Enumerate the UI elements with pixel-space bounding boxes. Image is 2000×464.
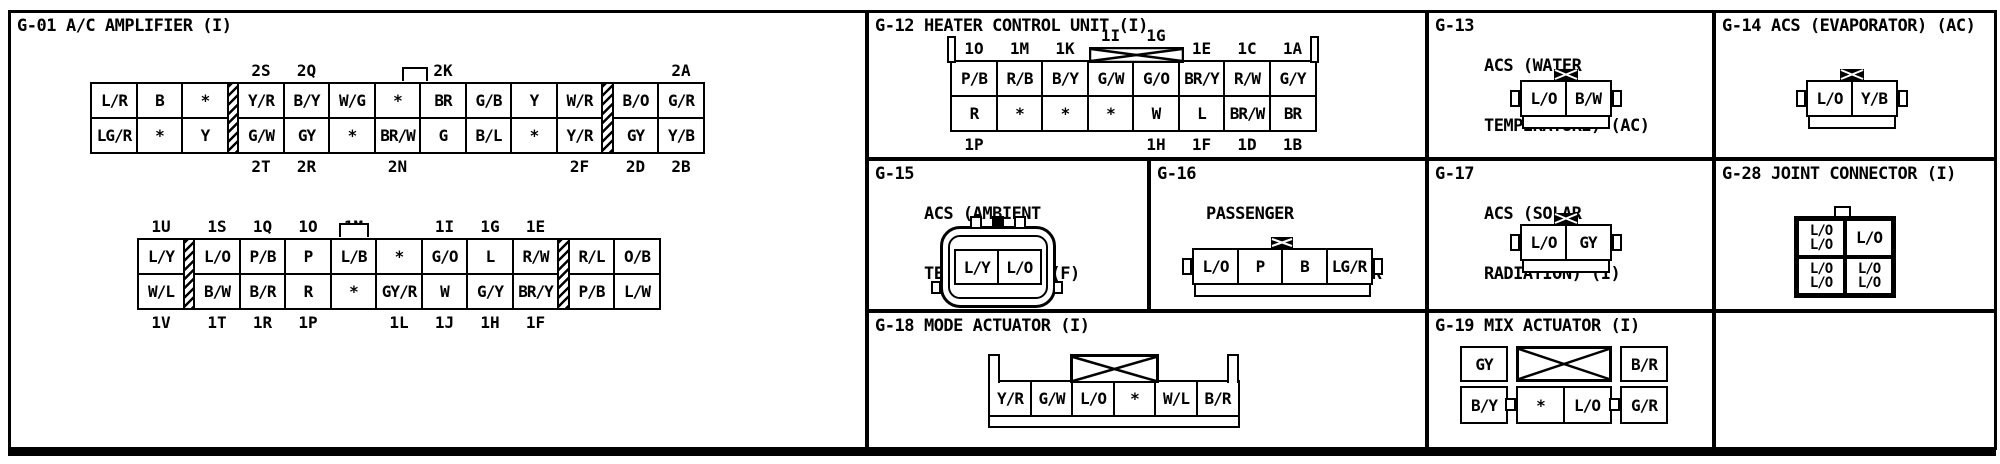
pin-label-bottom [996, 132, 1044, 159]
pin-pair: * L/O [1516, 386, 1612, 424]
wire-color-cell: O/B [613, 238, 661, 275]
pin-label-top [613, 212, 661, 238]
side-tab-icon [1612, 90, 1622, 107]
pin-label-top: 1M [996, 34, 1044, 60]
wire-color-cell: W [1132, 95, 1180, 132]
connector-code: G-28 [1722, 164, 1761, 184]
wire-color-cell: BR [1269, 95, 1317, 132]
connector-name: MODE ACTUATOR (I) [924, 316, 1090, 336]
pin-label-bottom [136, 154, 184, 181]
wire-color-cell: G/Y [1269, 60, 1317, 97]
connector-name: A/C AMPLIFIER (I) [66, 16, 232, 36]
pin-column: B/O GY 2D [612, 56, 660, 181]
wire-color-cell: L/O [1071, 380, 1115, 417]
wire-color-cell: G/R [1620, 386, 1668, 424]
pin-label-bottom: 2N [374, 154, 422, 181]
connector-code: G-15 [875, 164, 914, 324]
side-tab-icon [1182, 258, 1192, 275]
pin-label-top: 1S [193, 212, 241, 238]
pin-column: 2A G/R Y/B 2B [657, 56, 705, 181]
wire-color-cell: BR/Y [512, 273, 560, 310]
wire-color-cell: B/Y [1460, 386, 1508, 424]
pin-label-top [328, 56, 376, 82]
side-tab-icon [1898, 90, 1908, 107]
pin-column: Y * [510, 56, 558, 181]
pin-label-bottom [1041, 132, 1089, 159]
pin-column: 1G L G/Y 1H [466, 212, 514, 337]
pin-column: L/R LG/R [90, 56, 138, 181]
wire-color-cell: L/Y [137, 238, 185, 275]
pin-label-bottom: 1F [1178, 132, 1226, 159]
wire-color: L/O [1810, 262, 1832, 276]
panel-title: G-18 MODE ACTUATOR (I) [869, 313, 1425, 336]
wire-color-cell: G/O [421, 238, 469, 275]
crossed-tab-icon [1089, 47, 1184, 63]
pin-label-bottom: 1R [239, 310, 287, 337]
wire-color-cell: P/B [239, 238, 287, 275]
wire-color-cell: L/O [1520, 80, 1567, 117]
wire-color-cell: L/B [330, 238, 378, 275]
wire-color-cell: P/B [950, 60, 998, 97]
wire-color-cell: * [328, 117, 376, 154]
wire-color-cell: L/O [1192, 248, 1239, 285]
g12-connector: 1O P/B R 1P 1M R/B * 1K B/Y * 1I G/W * 1… [950, 34, 1317, 159]
wire-color-cell: GY/R [375, 273, 423, 310]
wire-color-cell: L [466, 238, 514, 275]
g01-connector-2: L/R LG/R B * * Y 2S Y/R G/W 2T 2Q B/Y GY… [90, 56, 705, 181]
wire-color-cell: B/L [465, 117, 513, 154]
g15-connector: L/Y L/O [940, 216, 1056, 308]
wire-color-cell: B/Y [1041, 60, 1089, 97]
wire-color-cell: * [996, 95, 1044, 132]
wire-color-cell: R/W [1223, 60, 1271, 97]
wire-color-cell: GY [1460, 346, 1508, 382]
wire-color: L/O [1856, 231, 1882, 245]
wire-color-cell: B/R [239, 273, 287, 310]
wire-color-cell: Y [510, 82, 558, 119]
wire-color-cell: B/R [1196, 380, 1240, 417]
pin-label-bottom [510, 154, 558, 181]
bracket-tab-icon [1227, 354, 1239, 383]
pin-label-top: 1E [1178, 34, 1226, 60]
top-tab-icon [992, 216, 1004, 229]
g28-connector: L/O L/O L/O L/O L/O L/O L/O [1794, 206, 1896, 298]
g14-connector: L/O Y/B [1796, 68, 1908, 129]
pin-label-bottom [568, 310, 616, 337]
wire-color-cell: BR [419, 82, 467, 119]
wire-color-cell: P/B [568, 273, 616, 310]
pin-label-bottom: 2D [612, 154, 660, 181]
wire-color-cell: Y/B [1851, 80, 1898, 117]
pin-column: R/L P/B [568, 212, 616, 337]
pin-label-top [568, 212, 616, 238]
pin-label-bottom [465, 154, 513, 181]
bracket-tab-icon [1310, 36, 1319, 63]
pin-column: 1E R/W BR/Y 1F [512, 212, 560, 337]
pin-column: 1E BR/Y L 1F [1178, 34, 1226, 159]
side-tab-icon [1796, 90, 1806, 107]
wire-color-cell: R/W [512, 238, 560, 275]
wire-color-cell: BR/W [1223, 95, 1271, 132]
wire-color-cell: G/W [237, 117, 285, 154]
pin-label-top: 1O [284, 212, 332, 238]
wire-color-cell: GY [612, 117, 660, 154]
pin-label-bottom: 2F [556, 154, 604, 181]
wire-color-cell: G/O [1132, 60, 1180, 97]
pin-label-top: 1U [137, 212, 185, 238]
side-tab-icon [1053, 281, 1063, 294]
panel-title: G-28 JOINT CONNECTOR (I) [1716, 161, 1994, 184]
pin-label-top: 1I [1087, 21, 1135, 47]
g13-connector: L/O B/W [1510, 68, 1622, 129]
connector-code: G-19 [1435, 316, 1474, 336]
bottom-border [8, 449, 1996, 456]
wire-color-cell: P [284, 238, 332, 275]
pin-column: 1S L/O B/W 1T [193, 212, 241, 337]
wire-color-cell: R/B [996, 60, 1044, 97]
wire-color: L/O [1858, 262, 1880, 276]
panel-title: G-01 A/C AMPLIFIER (I) [11, 13, 865, 36]
wire-color-cell: Y/B [657, 117, 705, 154]
top-tab-icon [1014, 216, 1026, 229]
wire-color-cell: GY [283, 117, 331, 154]
wire-color-cell: L/O [1563, 386, 1612, 424]
wire-color-cell: * [181, 82, 229, 119]
pin-label-bottom: 1H [466, 310, 514, 337]
pin-label-bottom: 1L [375, 310, 423, 337]
connector-name: PASSENGER [1206, 204, 1381, 224]
pin-label-top: 1K [1041, 34, 1089, 60]
pin-label-top [510, 56, 558, 82]
pin-label-bottom: 1F [512, 310, 560, 337]
g16-connector: L/O P B LG/R [1182, 236, 1383, 297]
pin-label-bottom [181, 154, 229, 181]
top-tab-icon [1834, 206, 1851, 218]
wire-color-cell: LG/R [90, 117, 138, 154]
pin-label-bottom [1087, 132, 1135, 159]
pin-label-bottom [90, 154, 138, 181]
wire-color-cell: P [1237, 248, 1284, 285]
side-tab-icon [1373, 258, 1383, 275]
wire-color-cell: B/W [193, 273, 241, 310]
pin-label-bottom: 1V [137, 310, 185, 337]
wire-color-cell: B [136, 82, 184, 119]
wire-color-cell: * [1041, 95, 1089, 132]
wire-color-cell: B/W [1565, 80, 1612, 117]
wire-color-cell: R [950, 95, 998, 132]
pin-label-bottom: 1P [284, 310, 332, 337]
pin-label-top [465, 56, 513, 82]
wire-color-cell: B/O [612, 82, 660, 119]
wire-color-cell: L/O L/O [1797, 219, 1845, 257]
pin-column: * Y [181, 56, 229, 181]
pin-column: * GY/R 1L [375, 212, 423, 337]
pin-column: 1O P/B R 1P [950, 34, 998, 159]
pin-label-top [556, 56, 604, 82]
wire-color: L/O [1810, 238, 1832, 252]
wire-color-cell: G/W [1030, 380, 1074, 417]
pin-column: 1K B/Y * [1041, 34, 1089, 159]
connector-name: JOINT CONNECTOR (I) [1771, 164, 1956, 184]
wire-color-cell: BR/Y [1178, 60, 1226, 97]
pin-label-top [181, 56, 229, 82]
panel-title: G-14 ACS (EVAPORATOR) (AC) [1716, 13, 1994, 36]
pin-label-top: 1E [512, 212, 560, 238]
wire-color-cell: L [1178, 95, 1226, 132]
pin-label-bottom [328, 154, 376, 181]
panel-title: G-19 MIX ACTUATOR (I) [1429, 313, 1712, 336]
wire-color-cell: * [1113, 380, 1157, 417]
g19-connector: GY B/R B/Y * L/O G/R [1460, 346, 1668, 424]
pin-label-bottom [613, 310, 661, 337]
wire-color-cell: BR/W [374, 117, 422, 154]
wire-color-cell: * [136, 117, 184, 154]
pin-column: 1Q P/B B/R 1R [239, 212, 287, 337]
wire-color-cell: L/O [1806, 80, 1853, 117]
pin-label-top: 2A [657, 56, 705, 82]
connector-name: ACS (EVAPORATOR) (AC) [1771, 16, 1975, 36]
wire-color-cell: GY [1565, 224, 1612, 261]
wire-color-cell: W/L [1154, 380, 1198, 417]
pin-column: O/B L/W [613, 212, 661, 337]
top-tab-icon [970, 216, 982, 229]
pin-column: 1I G/O W 1J [421, 212, 469, 337]
wiring-diagram-canvas: G-01 A/C AMPLIFIER (I) G-12 HEATER CONTR… [0, 0, 2000, 464]
bracket-tab-icon [988, 354, 1000, 383]
wire-color-cell: * [1087, 95, 1135, 132]
crossed-tab-icon [1516, 346, 1612, 382]
wire-color-cell: G [419, 117, 467, 154]
pin-column: 1C R/W BR/W 1D [1223, 34, 1271, 159]
g01-connector-1: 1U L/Y W/L 1V 1S L/O B/W 1T 1Q P/B B/R 1… [137, 212, 661, 337]
wire-color-cell: L/O [1845, 219, 1893, 257]
pin-column: 2S Y/R G/W 2T [237, 56, 285, 181]
side-tab-icon [1612, 234, 1622, 251]
wire-color-cell: W/R [556, 82, 604, 119]
keying-tab-icon [339, 223, 369, 237]
pin-column: W/G * [328, 56, 376, 181]
pin-column: G/B B/L [465, 56, 513, 181]
pin-label-bottom: 1J [421, 310, 469, 337]
pin-column: W/R Y/R 2F [556, 56, 604, 181]
wire-color-cell: L/O [193, 238, 241, 275]
side-tab-icon [1510, 234, 1520, 251]
pin-label-top: 1G [466, 212, 514, 238]
keying-tab-icon [402, 67, 428, 81]
pin-label-top: 1O [950, 34, 998, 60]
connector-nub-icon [1609, 398, 1620, 411]
side-tab-icon [931, 281, 941, 294]
connector-code: G-18 [875, 316, 914, 336]
pin-label-top: 2S [237, 56, 285, 82]
connector-code: G-01 [17, 16, 56, 36]
wire-color-cell: W/G [328, 82, 376, 119]
connector-name: MIX ACTUATOR (I) [1484, 316, 1640, 336]
pin-label-bottom: 1B [1269, 132, 1317, 159]
pin-label-top: 1C [1223, 34, 1271, 60]
wire-color-cell: * [374, 82, 422, 119]
wire-color-cell: B/Y [283, 82, 331, 119]
wire-color-cell: L/O L/O [1797, 257, 1845, 295]
wire-color-cell: Y/R [237, 82, 285, 119]
wire-color-cell: B/R [1620, 346, 1668, 382]
joint-connector-grid: L/O L/O L/O L/O L/O L/O L/O [1794, 216, 1896, 298]
pin-column: 1O P R 1P [284, 212, 332, 337]
pin-label-top: 1G [1132, 21, 1180, 47]
connector-code: G-14 [1722, 16, 1761, 36]
connector-code: G-13 [1435, 16, 1474, 176]
g18-connector: Y/R G/W L/O * W/L B/R [988, 354, 1240, 428]
wire-color-cell: * [375, 238, 423, 275]
wire-color-cell: * [330, 273, 378, 310]
pin-label-top: 2Q [283, 56, 331, 82]
connector-inner-housing: L/Y L/O [948, 235, 1048, 299]
wire-color-cell: B [1281, 248, 1328, 285]
wire-color-cell: Y/R [556, 117, 604, 154]
wire-color: L/O [1810, 276, 1832, 290]
wire-color-cell: L/O L/O [1845, 257, 1893, 295]
pin-label-top [612, 56, 660, 82]
pin-label-top [375, 212, 423, 238]
panel-empty [1713, 310, 1997, 450]
wire-color-cell: G/R [657, 82, 705, 119]
pin-label-bottom: 1D [1223, 132, 1271, 159]
pin-column: 1U L/Y W/L 1V [137, 212, 185, 337]
pin-label-bottom [419, 154, 467, 181]
side-tab-icon [1510, 90, 1520, 107]
wire-color-cell: L/O [997, 249, 1042, 285]
wire-color-cell: LG/R [1326, 248, 1373, 285]
wire-color-cell: * [510, 117, 558, 154]
connector-housing: L/Y L/O [940, 226, 1056, 308]
pin-label-top: 1Q [239, 212, 287, 238]
pin-label-bottom: 2B [657, 154, 705, 181]
wire-color-cell: L/O [1520, 224, 1567, 261]
wire-color-cell: Y/R [988, 380, 1032, 417]
wire-color-cell: R [284, 273, 332, 310]
pin-column: 1M R/B * [996, 34, 1044, 159]
connector-code: G-17 [1435, 164, 1474, 324]
g17-connector: L/O GY [1510, 212, 1622, 273]
wire-color-cell: G/Y [466, 273, 514, 310]
wire-color-cell: L/R [90, 82, 138, 119]
pin-label-bottom: 1T [193, 310, 241, 337]
wire-color: L/O [1810, 224, 1832, 238]
pin-column: B * [136, 56, 184, 181]
wire-color-cell: R/L [568, 238, 616, 275]
wire-color-cell: W [421, 273, 469, 310]
pin-label-bottom [330, 310, 378, 337]
pin-column: 2Q B/Y GY 2R [283, 56, 331, 181]
wire-color-cell: Y [181, 117, 229, 154]
pin-label-bottom: 1P [950, 132, 998, 159]
crossed-tab-icon [1070, 354, 1159, 383]
wire-color-cell: G/W [1087, 60, 1135, 97]
bracket-tab-icon [947, 36, 956, 63]
pin-label-top [90, 56, 138, 82]
wire-color-cell: W/L [137, 273, 185, 310]
pin-label-bottom: 2T [237, 154, 285, 181]
pin-label-bottom: 2R [283, 154, 331, 181]
wire-color-cell: * [1516, 386, 1565, 424]
wire-color-cell: L/Y [954, 249, 999, 285]
connector-code: G-12 [875, 16, 914, 36]
wire-color: L/O [1858, 276, 1880, 290]
pin-label-bottom: 1H [1132, 132, 1180, 159]
pin-label-top [136, 56, 184, 82]
connector-nub-icon [1505, 398, 1516, 411]
wire-color-cell: L/W [613, 273, 661, 310]
wire-color-cell: G/B [465, 82, 513, 119]
pin-label-top: 1I [421, 212, 469, 238]
